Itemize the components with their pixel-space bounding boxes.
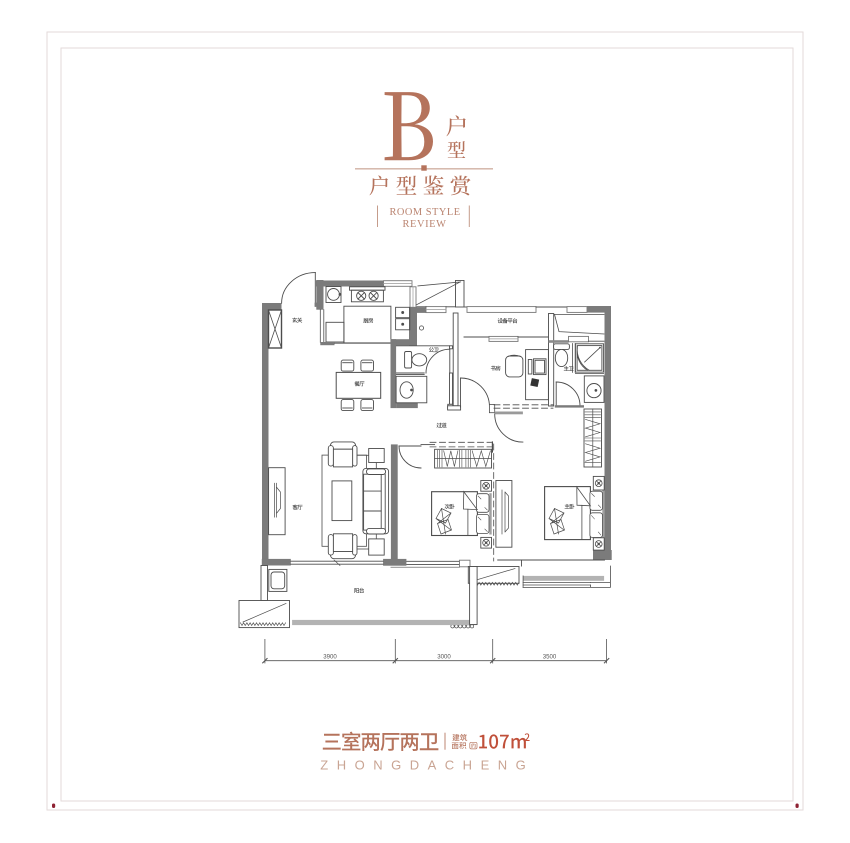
svg-text:ROOM STYLE: ROOM STYLE bbox=[389, 207, 460, 218]
svg-text:3900: 3900 bbox=[323, 654, 337, 661]
svg-text:3000: 3000 bbox=[437, 654, 451, 661]
svg-text:REVIEW: REVIEW bbox=[403, 219, 447, 230]
svg-text:3500: 3500 bbox=[543, 654, 557, 661]
svg-text:ZHONGDACHENG: ZHONGDACHENG bbox=[320, 757, 534, 772]
